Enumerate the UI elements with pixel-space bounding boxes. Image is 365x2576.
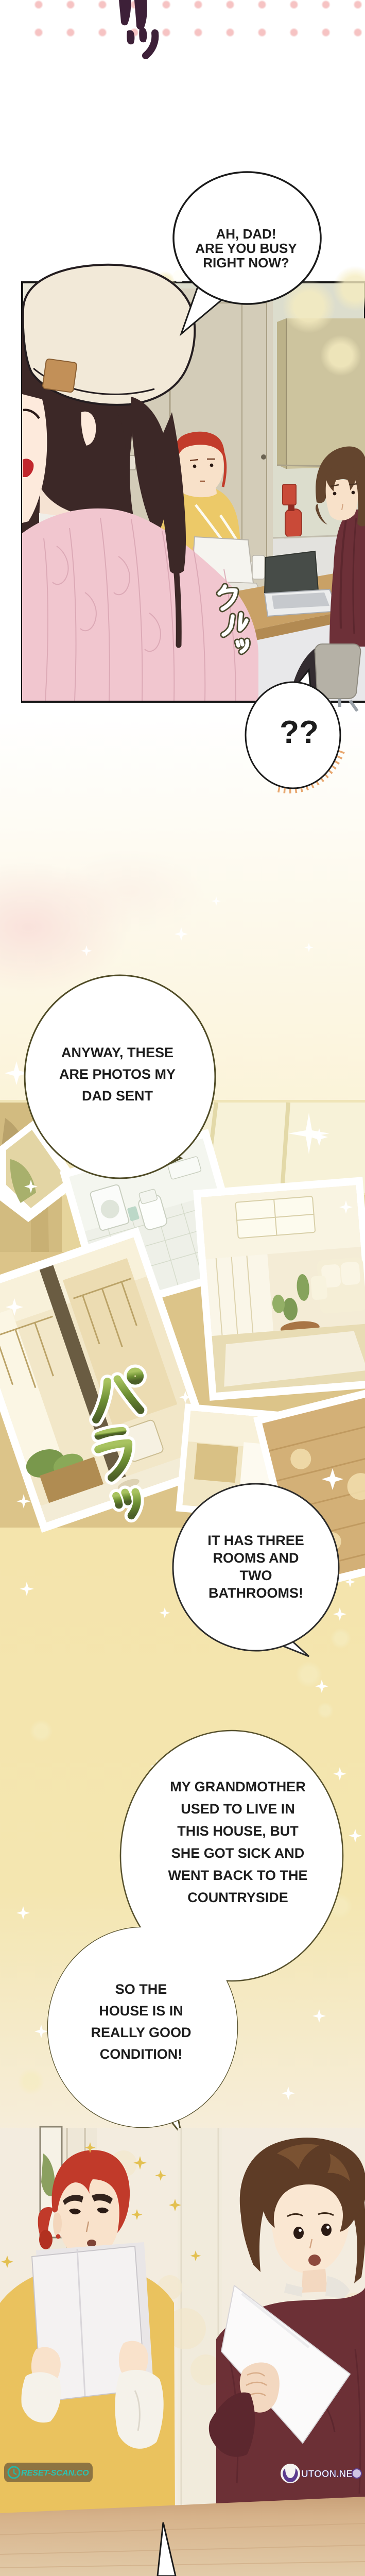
svg-text:SO THE: SO THE	[115, 1981, 167, 1997]
svg-text:BATHROOMS!: BATHROOMS!	[208, 1585, 303, 1601]
svg-text:RIGHT NOW?: RIGHT NOW?	[203, 255, 289, 270]
svg-text:HOUSE IS IN: HOUSE IS IN	[99, 2003, 183, 2019]
svg-text:UTOON.NET: UTOON.NET	[301, 2469, 359, 2480]
svg-text:WENT BACK TO THE: WENT BACK TO THE	[168, 1868, 308, 1883]
svg-text:TWO: TWO	[240, 1568, 272, 1583]
svg-text:ARE PHOTOS MY: ARE PHOTOS MY	[59, 1066, 176, 1082]
svg-text:COUNTRYSIDE: COUNTRYSIDE	[187, 1890, 288, 1905]
svg-text:CONDITION!: CONDITION!	[100, 2046, 182, 2062]
svg-text:RESET-SCAN.CO: RESET-SCAN.CO	[21, 2469, 89, 2478]
svg-text:SHE GOT SICK AND: SHE GOT SICK AND	[171, 1845, 305, 1861]
svg-text:THIS HOUSE, BUT: THIS HOUSE, BUT	[177, 1823, 299, 1839]
svg-text:ANYWAY, THESE: ANYWAY, THESE	[61, 1045, 173, 1060]
svg-text:ROOMS AND: ROOMS AND	[213, 1550, 299, 1566]
svg-text:IT HAS THREE: IT HAS THREE	[207, 1533, 304, 1548]
svg-text:USED TO LIVE IN: USED TO LIVE IN	[181, 1801, 295, 1817]
svg-text:DAD SENT: DAD SENT	[82, 1088, 153, 1104]
svg-text:REALLY GOOD: REALLY GOOD	[91, 2025, 191, 2040]
svg-text:ARE YOU BUSY: ARE YOU BUSY	[195, 241, 297, 256]
svg-text:AH, DAD!: AH, DAD!	[216, 226, 276, 242]
svg-text:??: ??	[280, 715, 319, 750]
svg-text:MY GRANDMOTHER: MY GRANDMOTHER	[170, 1779, 306, 1794]
